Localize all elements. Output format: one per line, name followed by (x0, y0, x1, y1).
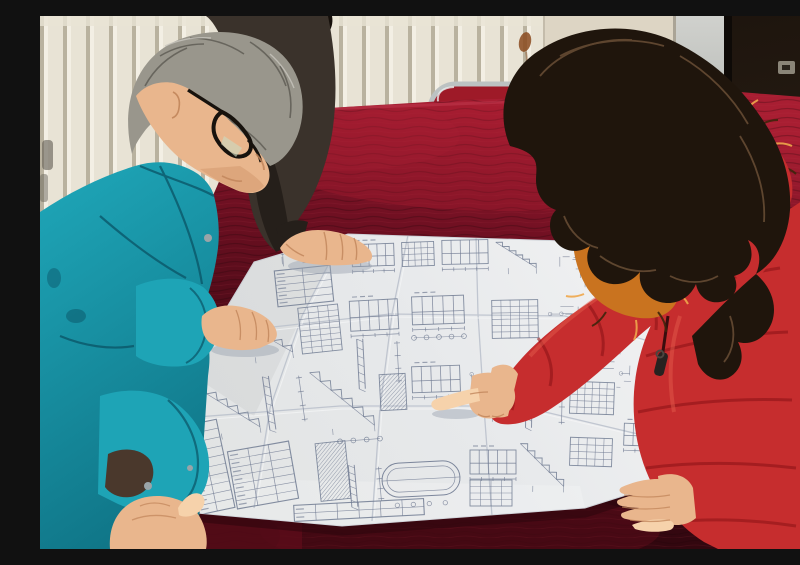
wall-scuff-mark (40, 174, 48, 202)
jacket-smudge (47, 268, 61, 288)
wall-scuff-mark (42, 140, 53, 170)
photo-scene (40, 16, 800, 549)
snap-button (204, 234, 212, 242)
door-latch-slot (782, 65, 790, 70)
snap-button (144, 482, 152, 490)
snap-button (187, 465, 193, 471)
jacket-smudge (66, 309, 86, 323)
